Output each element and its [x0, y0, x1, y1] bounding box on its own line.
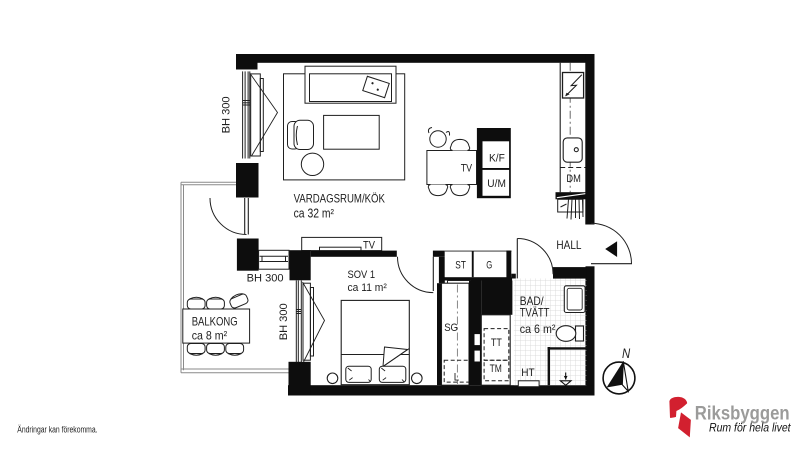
svg-text:N: N [622, 345, 631, 361]
svg-text:ca 11 m²: ca 11 m² [348, 282, 388, 294]
svg-text:VARDAGSRUM/KÖK: VARDAGSRUM/KÖK [294, 191, 386, 205]
svg-text:Ändringar kan förekomma.: Ändringar kan förekomma. [17, 424, 97, 434]
svg-text:ca 8 m²: ca 8 m² [192, 328, 228, 342]
svg-text:ca 6 m²: ca 6 m² [520, 322, 556, 336]
svg-text:BH 300: BH 300 [247, 273, 284, 285]
svg-text:TM: TM [490, 363, 502, 375]
svg-text:HT: HT [521, 367, 535, 379]
svg-text:BH 300: BH 300 [221, 96, 233, 133]
svg-text:G: G [486, 259, 492, 271]
svg-text:Rum för hela livet: Rum för hela livet [709, 422, 791, 434]
svg-text:K/F: K/F [489, 152, 505, 164]
svg-text:TT: TT [491, 337, 502, 349]
svg-text:U/M: U/M [487, 178, 506, 190]
svg-text:SG: SG [444, 322, 458, 334]
svg-text:DM: DM [566, 173, 581, 185]
svg-text:TV: TV [461, 162, 473, 174]
svg-text:L: L [454, 372, 459, 384]
svg-text:TV: TV [363, 240, 376, 252]
svg-text:ca 32 m²: ca 32 m² [294, 205, 335, 220]
svg-text:ST: ST [455, 259, 466, 271]
svg-text:BALKONG: BALKONG [192, 315, 238, 329]
svg-text:SOV 1: SOV 1 [348, 269, 376, 281]
svg-text:Riksbyggen: Riksbyggen [695, 403, 790, 424]
svg-text:HALL: HALL [556, 238, 581, 252]
svg-text:BH 300: BH 300 [278, 303, 290, 340]
svg-text:TVÄTT: TVÄTT [520, 306, 550, 320]
